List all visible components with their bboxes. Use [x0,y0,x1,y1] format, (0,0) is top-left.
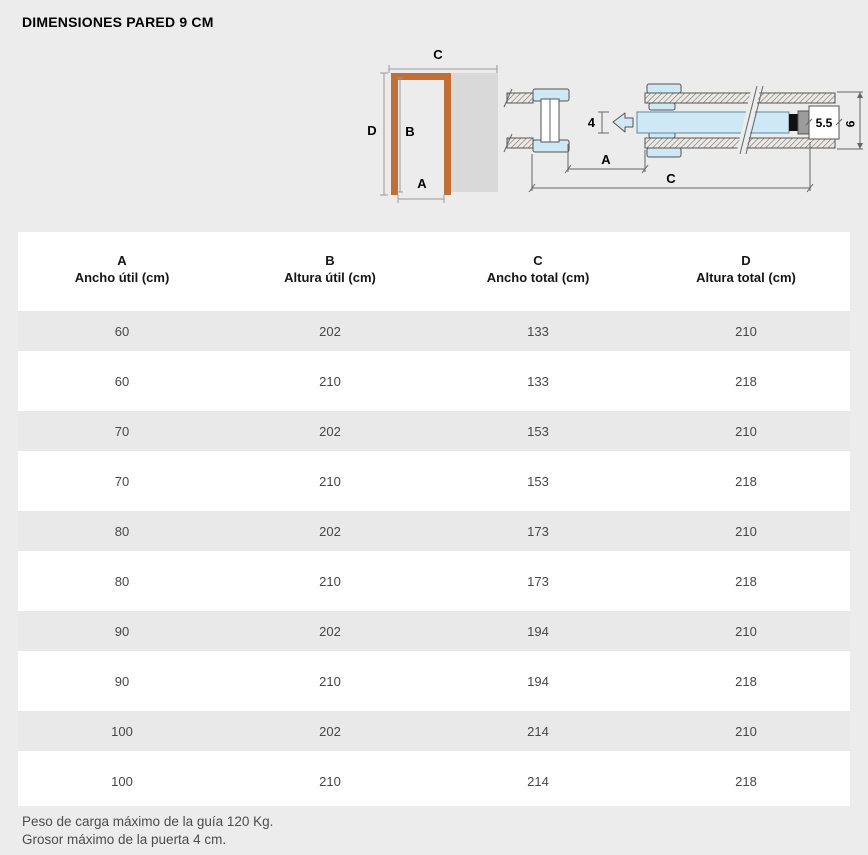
dimension-a: A [398,176,444,203]
column-letter: B [325,252,334,269]
pocket-cavity [451,73,498,192]
label-c-plan: C [666,171,676,186]
table-header-cell-d: D Altura total (cm) [642,232,850,306]
column-label: Altura total (cm) [696,269,796,286]
table-cell: 60 [18,356,226,406]
dimension-b: B [397,78,415,192]
table-cell: 133 [434,356,642,406]
table-cell: 100 [18,756,226,806]
door-stopper [789,114,798,131]
slide-direction-arrow [613,113,633,132]
dimension-d: D [367,73,388,195]
table-cell: 202 [226,611,434,651]
table-cell: 153 [434,411,642,451]
label-5-5: 5.5 [816,116,833,130]
table-cell: 210 [642,311,850,351]
table-row: 90 210 194 218 [18,656,850,706]
table-cell: 214 [434,756,642,806]
table-cell: 210 [226,756,434,806]
table-row: 80 210 173 218 [18,556,850,606]
dimension-door-thickness: 4 [588,112,609,133]
end-piece [798,111,809,134]
table-cell: 202 [226,711,434,751]
rail-width-box: 5.5 [806,106,842,139]
table-row: 90 202 194 210 [18,606,850,656]
column-letter: D [741,252,750,269]
table-cell: 60 [18,311,226,351]
column-letter: C [533,252,542,269]
wall-stub-left [504,89,533,152]
front-view-diagram: C D B A [358,40,508,210]
table-cell: 210 [226,556,434,606]
table-cell: 202 [226,411,434,451]
table-cell: 80 [18,511,226,551]
table-cell: 100 [18,711,226,751]
table-row: 80 202 173 210 [18,506,850,556]
table-cell: 210 [642,711,850,751]
label-4: 4 [588,115,596,130]
table-cell: 153 [434,456,642,506]
footnote-max-door-thickness: Grosor máximo de la puerta 4 cm. [22,831,273,849]
table-cell: 70 [18,411,226,451]
table-cell: 210 [642,411,850,451]
label-a: A [417,176,427,191]
column-label: Ancho total (cm) [487,269,590,286]
table-cell: 173 [434,556,642,606]
dimensions-table: A Ancho útil (cm) B Altura útil (cm) C A… [18,232,850,806]
label-9: 9 [843,121,857,128]
table-row: 100 202 214 210 [18,706,850,756]
table-cell: 194 [434,611,642,651]
label-a-plan: A [601,152,611,167]
table-cell: 133 [434,311,642,351]
door-panel [637,112,789,133]
table-header: A Ancho útil (cm) B Altura útil (cm) C A… [18,232,850,306]
label-b: B [405,124,414,139]
table-cell: 218 [642,356,850,406]
table-cell: 210 [226,456,434,506]
table-cell: 194 [434,656,642,706]
table-cell: 90 [18,656,226,706]
column-label: Altura útil (cm) [284,269,376,286]
closing-jamb [533,89,569,152]
table-header-cell-a: A Ancho útil (cm) [18,232,226,306]
table-cell: 90 [18,611,226,651]
dimension-a-plan: A [565,144,648,173]
table-cell: 202 [226,311,434,351]
table-cell: 218 [642,756,850,806]
table-cell: 210 [226,356,434,406]
table-cell: 210 [642,511,850,551]
table-cell: 80 [18,556,226,606]
table-header-cell-c: C Ancho total (cm) [434,232,642,306]
column-label: Ancho útil (cm) [75,269,170,286]
table-header-cell-b: B Altura útil (cm) [226,232,434,306]
table-cell: 218 [642,456,850,506]
table-cell: 173 [434,511,642,551]
table-row: 60 202 133 210 [18,306,850,356]
table-row: 100 210 214 218 [18,756,850,806]
table-cell: 218 [642,656,850,706]
table-row: 70 210 153 218 [18,456,850,506]
page-title: DIMENSIONES PARED 9 CM [22,14,214,30]
table-cell: 210 [642,611,850,651]
table-cell: 218 [642,556,850,606]
column-letter: A [117,252,126,269]
table-cell: 210 [226,656,434,706]
table-cell: 202 [226,511,434,551]
footnotes: Peso de carga máximo de la guía 120 Kg. … [22,813,273,849]
label-d: D [367,123,376,138]
label-c: C [433,47,443,62]
dimension-c: C [389,47,497,73]
table-cell: 70 [18,456,226,506]
table-cell: 214 [434,711,642,751]
footnote-max-load: Peso de carga máximo de la guía 120 Kg. [22,813,273,831]
plan-view-diagram: 4 5.5 9 A C [503,82,865,207]
table-row: 70 202 153 210 [18,406,850,456]
table-row: 60 210 133 218 [18,356,850,406]
